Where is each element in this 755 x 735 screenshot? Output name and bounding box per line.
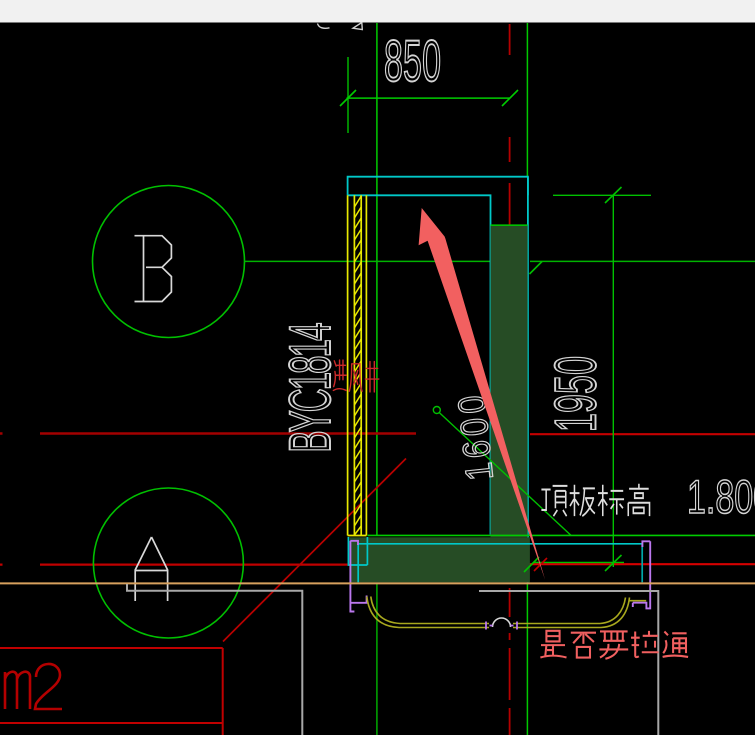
- svg-text:BYC1814: BYC1814: [278, 323, 343, 453]
- svg-text:850: 850: [384, 30, 441, 95]
- svg-text:1.800: 1.800: [687, 470, 755, 523]
- svg-text:1950: 1950: [544, 356, 609, 432]
